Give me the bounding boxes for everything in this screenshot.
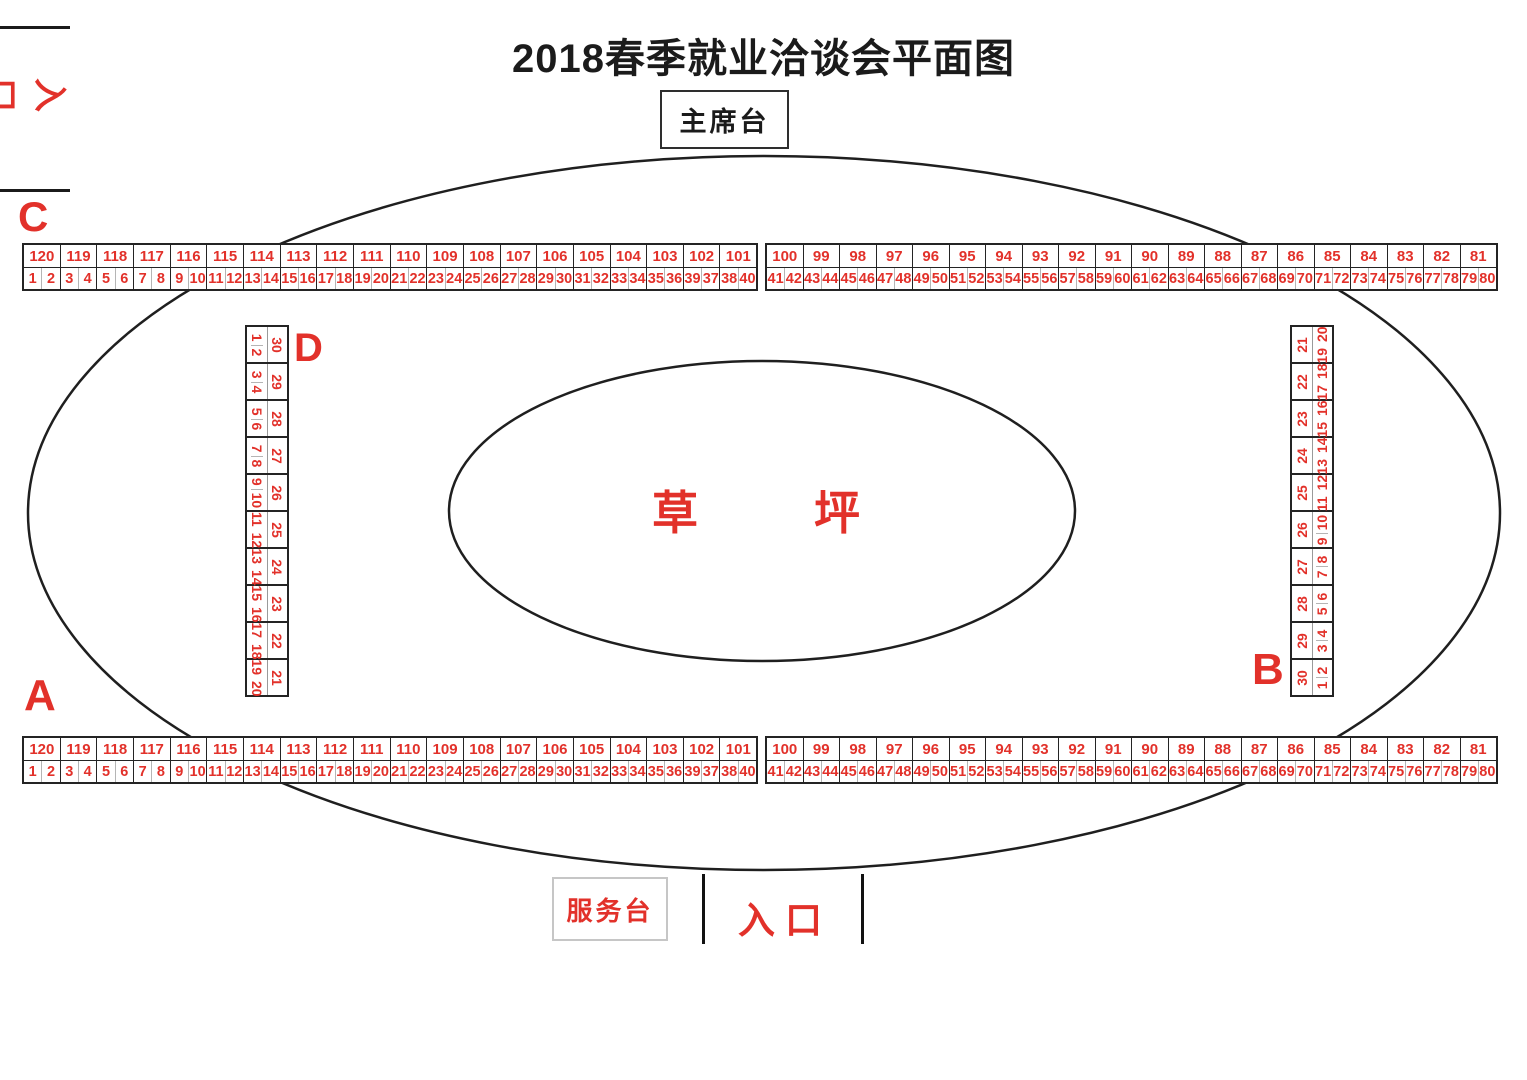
seat-number: 16: [249, 607, 265, 623]
booth-number-half: 26: [1292, 512, 1313, 547]
seat-number: 49: [913, 268, 931, 289]
seat-number: 31: [574, 761, 592, 782]
seat-number: 39: [684, 761, 702, 782]
booth-number-half: 22: [1292, 364, 1313, 399]
seat-pair-cell: 12: [24, 268, 61, 289]
seat-pair-cell: 34: [61, 761, 98, 782]
booth-number-row: 1009998979695949392919089888786858483828…: [767, 245, 1496, 268]
seat-number: 3: [1314, 644, 1330, 652]
seat-pair-half: 1112: [247, 512, 268, 547]
seat-pair-cell: 56: [97, 761, 134, 782]
seat-number: 12: [226, 268, 243, 289]
seat-number: 54: [1004, 268, 1021, 289]
seat-pair-cell: 910: [171, 268, 208, 289]
booth-cell: 1230: [247, 327, 287, 364]
seat-number: 45: [840, 761, 858, 782]
seat-pair-cell: 6768: [1242, 761, 1279, 782]
seat-number: 51: [950, 268, 968, 289]
seat-pair-cell: 3334: [611, 268, 648, 289]
booth-number: 107: [501, 738, 538, 760]
entrance-bottom-label: 入口: [735, 890, 835, 944]
seat-pair-cell: 7374: [1351, 761, 1388, 782]
seat-number: 21: [391, 268, 409, 289]
seat-number: 12: [249, 532, 265, 548]
booth-number: 93: [1023, 245, 1060, 267]
seat-pair-cell: 78: [134, 268, 171, 289]
booth-number: 112: [317, 738, 354, 760]
entrance-bottom-line-left: [702, 874, 705, 944]
seat-pair-cell: 6566: [1205, 268, 1242, 289]
seat-pair-cell: 2728: [501, 761, 538, 782]
seat-pair-cell: 3937: [684, 761, 721, 782]
booth-cell: 2856: [1292, 586, 1332, 623]
booth-number-inner: 24: [267, 549, 287, 585]
seat-number: 26: [482, 761, 499, 782]
seat-number: 13: [244, 761, 262, 782]
seat-pair-cell: 4950: [913, 761, 950, 782]
booth-number: 96: [913, 738, 950, 760]
booth-number: 115: [207, 245, 244, 267]
booth-number-half: 29: [1292, 623, 1313, 658]
booth-number-inner: 26: [267, 475, 287, 511]
booth-cell: 3012: [1292, 660, 1332, 695]
booth-number-half: 25: [1292, 475, 1313, 510]
booth-cell: 211920: [1292, 327, 1332, 364]
booth-number: 90: [1132, 738, 1169, 760]
booth-cell: 171822: [247, 623, 287, 660]
booth-cell: 5628: [247, 401, 287, 438]
seat-number: 74: [1369, 268, 1386, 289]
seat-number: 14: [1314, 437, 1330, 453]
booth-number-inner: 28: [1292, 586, 1312, 622]
seat-pair-inner: 1718: [247, 623, 267, 659]
booth-number: 107: [501, 245, 538, 267]
seat-number: 64: [1187, 268, 1204, 289]
seat-number: 77: [1424, 761, 1442, 782]
seat-number: 73: [1351, 761, 1369, 782]
seat-number: 20: [372, 268, 389, 289]
booth-number: 109: [427, 738, 464, 760]
stage-box: 主席台: [660, 90, 789, 149]
booth-number-inner: 22: [1292, 364, 1312, 400]
seat-number: 7: [134, 268, 152, 289]
seat-pair-cell: 7576: [1388, 761, 1425, 782]
seat-pair-cell: 3132: [574, 268, 611, 289]
seat-number: 65: [1205, 268, 1223, 289]
booth-number-inner: 30: [267, 327, 287, 363]
seat-number: 5: [249, 407, 265, 415]
seat-pair-cell: 4142: [767, 268, 804, 289]
booth-number: 101: [720, 245, 756, 267]
seat-number: 59: [1096, 761, 1114, 782]
seat-number: 23: [427, 268, 445, 289]
seat-number-row: 1234567891011121314151617181920212223242…: [24, 268, 756, 289]
seat-number: 17: [317, 268, 335, 289]
seat-pair-cell: 2728: [501, 268, 538, 289]
booth-number-inner: 25: [1292, 475, 1312, 511]
booth-number-inner: 21: [1292, 327, 1312, 363]
seat-number: 7: [249, 444, 265, 452]
seat-number: 17: [249, 622, 265, 638]
seat-number: 54: [1004, 761, 1021, 782]
booth-number-half: 27: [1292, 549, 1313, 584]
seat-number: 7: [1314, 570, 1330, 578]
entrance-top-line-upper: [0, 26, 70, 29]
seat-pair-cell: 2930: [537, 268, 574, 289]
booth-number: 90: [1132, 245, 1169, 267]
seat-pair-cell: 6970: [1278, 761, 1315, 782]
seat-number: 58: [1077, 761, 1094, 782]
seat-number: 14: [262, 761, 279, 782]
seat-pair-cell: 4546: [840, 268, 877, 289]
seat-pair-cell: 5556: [1023, 761, 1060, 782]
seat-pair-cell: 2526: [464, 761, 501, 782]
seat-number: 35: [647, 761, 665, 782]
seat-number: 44: [822, 268, 839, 289]
seat-number: 20: [249, 681, 265, 697]
seat-pair-half: 1718: [1313, 364, 1333, 399]
booth-number-row: 1201191181171161151141131121111101091081…: [24, 738, 756, 761]
seat-pair-half: 1314: [1313, 438, 1333, 473]
seat-number: 29: [537, 268, 555, 289]
seat-number: 19: [1314, 348, 1330, 364]
seat-number: 5: [1314, 607, 1330, 615]
seat-number: 8: [152, 761, 169, 782]
seat-number: 80: [1479, 268, 1496, 289]
seat-pair-cell: 4950: [913, 268, 950, 289]
seat-pair-cell: 1314: [244, 268, 281, 289]
booth-number: 108: [464, 738, 501, 760]
seat-number: 34: [629, 761, 646, 782]
seat-number: 5: [97, 761, 115, 782]
booth-cell: 131424: [247, 549, 287, 586]
seat-pair-divider: [251, 455, 263, 456]
seat-number: 3: [249, 370, 265, 378]
seat-number: 19: [354, 761, 372, 782]
seat-number: 23: [427, 761, 445, 782]
seat-pair-cell: 6768: [1242, 268, 1279, 289]
seat-pair-cell: 2324: [427, 268, 464, 289]
booth-number: 82: [1424, 738, 1461, 760]
booth-number-half: 25: [268, 512, 288, 547]
seat-number: 8: [249, 459, 265, 467]
seat-number: 27: [501, 761, 519, 782]
seat-number: 11: [249, 511, 265, 526]
booth-number: 83: [1388, 245, 1425, 267]
seat-number: 62: [1150, 761, 1167, 782]
seat-pair-half: 56: [247, 401, 268, 436]
booth-number: 120: [24, 245, 61, 267]
seat-number: 27: [501, 268, 519, 289]
seat-number: 70: [1296, 268, 1313, 289]
seat-number: 2: [42, 268, 59, 289]
booth-number: 96: [913, 245, 950, 267]
zone-label-c: C: [18, 196, 48, 238]
seat-number: 77: [1424, 268, 1442, 289]
booth-number-half: 23: [1292, 401, 1313, 436]
seat-number: 18: [336, 268, 353, 289]
seat-number: 6: [116, 761, 133, 782]
seat-number: 17: [1314, 385, 1330, 401]
seat-pair-cell: 5354: [986, 761, 1023, 782]
seat-pair-cell: 4546: [840, 761, 877, 782]
seat-number: 11: [207, 761, 225, 782]
seat-number: 7: [134, 761, 152, 782]
booth-number: 83: [1388, 738, 1425, 760]
seat-number: 78: [1442, 268, 1459, 289]
seat-number: 55: [1023, 761, 1041, 782]
booth-number: 118: [97, 738, 134, 760]
booth-number: 99: [804, 245, 841, 267]
seat-number: 52: [968, 761, 985, 782]
booth-number: 98: [840, 738, 877, 760]
service-desk-label: 服务台: [566, 891, 653, 928]
seat-pair-cell: 3132: [574, 761, 611, 782]
booth-number: 105: [574, 245, 611, 267]
seat-number: 65: [1205, 761, 1223, 782]
booth-number: 85: [1315, 245, 1352, 267]
seat-number: 63: [1169, 268, 1187, 289]
booth-number: 109: [427, 245, 464, 267]
seat-number: 75: [1388, 268, 1406, 289]
seat-number: 37: [702, 268, 719, 289]
seat-number: 75: [1388, 761, 1406, 782]
seat-number: 35: [647, 268, 665, 289]
seat-number-row: 4142434445464748495051525354555657585960…: [767, 761, 1496, 782]
stage-label: 主席台: [680, 100, 770, 139]
booth-number: 113: [281, 245, 318, 267]
seat-pair-cell: 5758: [1059, 761, 1096, 782]
booth-cell: 111225: [247, 512, 287, 549]
booth-number-half: 26: [268, 475, 288, 510]
seat-pair-cell: 2930: [537, 761, 574, 782]
booth-number-inner: 30: [1292, 660, 1312, 696]
booth-strip-bottom-right: 1009998979695949392919089888786858483828…: [765, 736, 1498, 784]
booth-number: 89: [1169, 245, 1206, 267]
booth-number: 82: [1424, 245, 1461, 267]
seat-pair-inner: 34: [247, 364, 267, 400]
seat-number: 3: [61, 268, 79, 289]
booth-number-inner: 24: [1292, 438, 1312, 474]
seat-pair-divider: [1316, 533, 1328, 534]
seat-pair-divider: [1316, 677, 1328, 678]
booth-strip-column-d: 1230342956287827910261112251314241516231…: [245, 325, 289, 697]
seat-pair-cell: 7778: [1424, 268, 1461, 289]
seat-pair-divider: [1316, 566, 1328, 567]
seat-number: 17: [317, 761, 335, 782]
seat-number: 37: [702, 761, 719, 782]
seat-pair-cell: 5152: [950, 761, 987, 782]
seat-number: 11: [207, 268, 225, 289]
booth-number-inner: 22: [267, 623, 287, 659]
seat-pair-inner: 56: [247, 401, 267, 437]
seat-number: 56: [1041, 268, 1058, 289]
booth-number: 114: [244, 245, 281, 267]
seat-pair-half: 78: [247, 438, 268, 473]
seat-number: 41: [767, 761, 785, 782]
seat-pair-divider: [1316, 603, 1328, 604]
seat-pair-cell: 7172: [1315, 761, 1352, 782]
booth-number: 84: [1351, 245, 1388, 267]
seat-number: 52: [968, 268, 985, 289]
seat-number: 22: [409, 268, 426, 289]
seat-number: 10: [189, 268, 206, 289]
seat-pair-half: 1112: [1313, 475, 1333, 510]
seat-number: 19: [249, 659, 265, 675]
seat-number: 12: [226, 761, 243, 782]
booth-number: 116: [171, 738, 208, 760]
seat-number: 4: [79, 268, 96, 289]
seat-pair-cell: 6364: [1169, 761, 1206, 782]
seat-number: 5: [97, 268, 115, 289]
seat-number: 67: [1242, 761, 1260, 782]
seat-number: 4: [79, 761, 96, 782]
seat-number: 30: [556, 761, 573, 782]
seat-pair-cell: 2526: [464, 268, 501, 289]
booth-number-half: 24: [1292, 438, 1313, 473]
seat-number: 63: [1169, 761, 1187, 782]
booth-number: 100: [767, 738, 804, 760]
booth-number-half: 21: [268, 660, 288, 695]
booth-number: 104: [611, 245, 648, 267]
booth-number: 97: [877, 245, 914, 267]
booth-cell: 91026: [247, 475, 287, 512]
seat-number: 13: [244, 268, 262, 289]
seat-pair-cell: 6162: [1132, 268, 1169, 289]
booth-number: 94: [986, 738, 1023, 760]
seat-number: 71: [1315, 761, 1333, 782]
seat-pair-cell: 1112: [207, 268, 244, 289]
seat-number: 39: [684, 268, 702, 289]
seat-number: 41: [767, 268, 785, 289]
booth-number-half: 30: [268, 327, 288, 362]
seat-pair-cell: 2122: [391, 268, 428, 289]
seat-number: 12: [1314, 474, 1330, 490]
seat-number: 68: [1260, 761, 1277, 782]
booth-number: 81: [1461, 245, 1497, 267]
seat-number: 16: [299, 268, 316, 289]
booth-number: 98: [840, 245, 877, 267]
booth-number: 101: [720, 738, 756, 760]
booth-number: 119: [61, 738, 98, 760]
seat-pair-cell: 5960: [1096, 761, 1133, 782]
booth-cell: 241314: [1292, 438, 1332, 475]
seat-pair-cell: 6970: [1278, 268, 1315, 289]
booth-number: 114: [244, 738, 281, 760]
booth-number-half: 28: [1292, 586, 1313, 621]
booth-cell: 151623: [247, 586, 287, 623]
booth-number: 97: [877, 738, 914, 760]
seat-pair-cell: 4344: [804, 761, 841, 782]
seat-number: 36: [665, 761, 682, 782]
seat-number: 42: [785, 268, 802, 289]
seat-pair-cell: 1112: [207, 761, 244, 782]
seat-number: 48: [895, 268, 912, 289]
seat-pair-cell: 4748: [877, 268, 914, 289]
seat-number: 40: [739, 268, 756, 289]
seat-number: 72: [1333, 761, 1350, 782]
page-title: 2018春季就业洽谈会平面图: [0, 26, 1527, 84]
lawn-label-char-2: 坪: [814, 490, 860, 536]
booth-number: 94: [986, 245, 1023, 267]
seat-pair-half: 1516: [1313, 401, 1333, 436]
booth-cell: 3429: [247, 364, 287, 401]
seat-number: 11: [1314, 496, 1330, 511]
seat-pair-half: 34: [247, 364, 268, 399]
seat-pair-cell: 5758: [1059, 268, 1096, 289]
lawn-label-char-1: 草: [652, 490, 698, 536]
booth-strip-top-left: 1201191181171161151141131121111101091081…: [22, 243, 758, 291]
booth-cell: 251112: [1292, 475, 1332, 512]
seat-number: 66: [1223, 761, 1240, 782]
seat-pair-divider: [251, 418, 263, 419]
booth-cell: 2934: [1292, 623, 1332, 660]
seat-pair-cell: 7980: [1461, 268, 1497, 289]
booth-number: 87: [1242, 245, 1279, 267]
seat-pair-cell: 2122: [391, 761, 428, 782]
booth-number-inner: 26: [1292, 512, 1312, 548]
booth-number: 102: [684, 245, 721, 267]
seat-number: 53: [986, 761, 1004, 782]
seat-pair-half: 34: [1313, 623, 1333, 658]
seat-pair-cell: 3840: [720, 761, 756, 782]
booth-strip-top-right: 1009998979695949392919089888786858483828…: [765, 243, 1498, 291]
seat-pair-cell: 6566: [1205, 761, 1242, 782]
seat-pair-cell: 5960: [1096, 268, 1133, 289]
seat-pair-cell: 7576: [1388, 268, 1425, 289]
booth-cell: 2778: [1292, 549, 1332, 586]
seat-number: 6: [116, 268, 133, 289]
seat-pair-cell: 3840: [720, 268, 756, 289]
seat-number: 38: [720, 268, 738, 289]
seat-number: 68: [1260, 268, 1277, 289]
seat-number: 14: [249, 570, 265, 586]
seat-pair-half: 1314: [247, 549, 268, 584]
booth-cell: 192021: [247, 660, 287, 695]
booth-number: 85: [1315, 738, 1352, 760]
booth-number: 91: [1096, 738, 1133, 760]
booth-number-half: 29: [268, 364, 288, 399]
seat-pair-cell: 4142: [767, 761, 804, 782]
booth-number-row: 1201191181171161151141131121111101091081…: [24, 245, 756, 268]
seat-number: 73: [1351, 268, 1369, 289]
seat-number: 15: [281, 761, 299, 782]
booth-number: 117: [134, 245, 171, 267]
seat-number: 70: [1296, 761, 1313, 782]
seat-number: 18: [1314, 363, 1330, 379]
booth-number-half: 24: [268, 549, 288, 584]
seat-pair-inner: 1920: [247, 660, 267, 696]
seat-pair-half: 1920: [247, 660, 268, 695]
seat-pair-cell: 5354: [986, 268, 1023, 289]
seat-number: 9: [171, 761, 189, 782]
booth-number: 87: [1242, 738, 1279, 760]
seat-number: 14: [262, 268, 279, 289]
seat-pair-inner: 78: [247, 438, 267, 474]
seat-pair-cell: 4748: [877, 761, 914, 782]
seat-pair-cell: 5152: [950, 268, 987, 289]
seat-pair-cell: 7374: [1351, 268, 1388, 289]
booth-number-inner: 25: [267, 512, 287, 548]
seat-pair-inner: 910: [247, 475, 267, 511]
seat-pair-inner: 56: [1312, 586, 1332, 622]
seat-number: 69: [1278, 268, 1296, 289]
seat-number: 16: [1314, 400, 1330, 416]
seat-number: 25: [464, 268, 482, 289]
booth-number: 86: [1278, 738, 1315, 760]
seat-number: 79: [1461, 761, 1479, 782]
booth-number-row: 1009998979695949392919089888786858483828…: [767, 738, 1496, 761]
